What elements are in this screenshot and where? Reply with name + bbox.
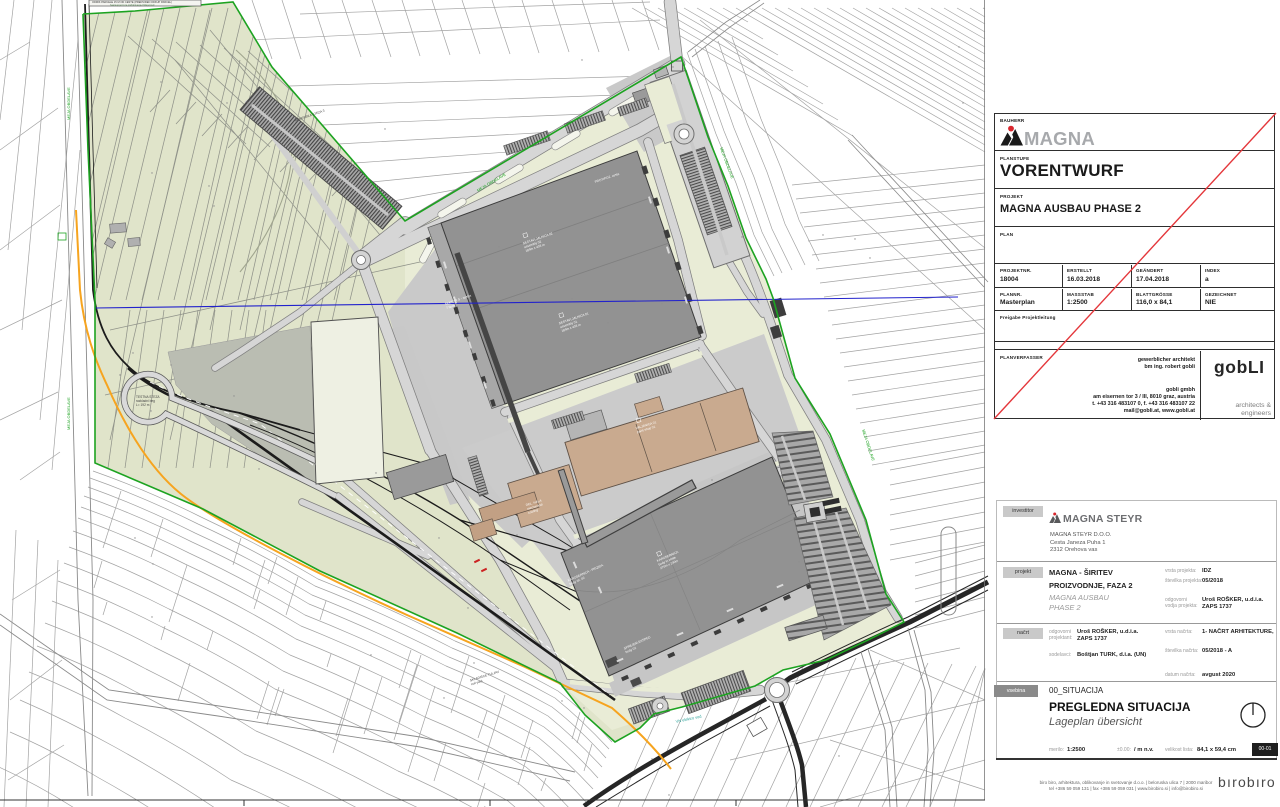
- svg-text:MAGNA STEYR: MAGNA STEYR: [1063, 513, 1143, 525]
- svg-text:has/support za pridobivanje f/: has/support za pridobivanje f/dispozed: [110, 3, 155, 7]
- svg-text:MEJA OBDELAVE: MEJA OBDELAVE: [66, 397, 71, 430]
- svg-text:VN elektro vod: VN elektro vod: [675, 714, 702, 724]
- svg-text:MEJA OBDELAVE: MEJA OBDELAVE: [861, 429, 876, 462]
- svg-text:MAGNA: MAGNA: [1024, 128, 1095, 149]
- svg-text:L= 192 m: L= 192 m: [136, 403, 150, 407]
- svg-text:MEJA OBDELAVE: MEJA OBDELAVE: [66, 87, 71, 120]
